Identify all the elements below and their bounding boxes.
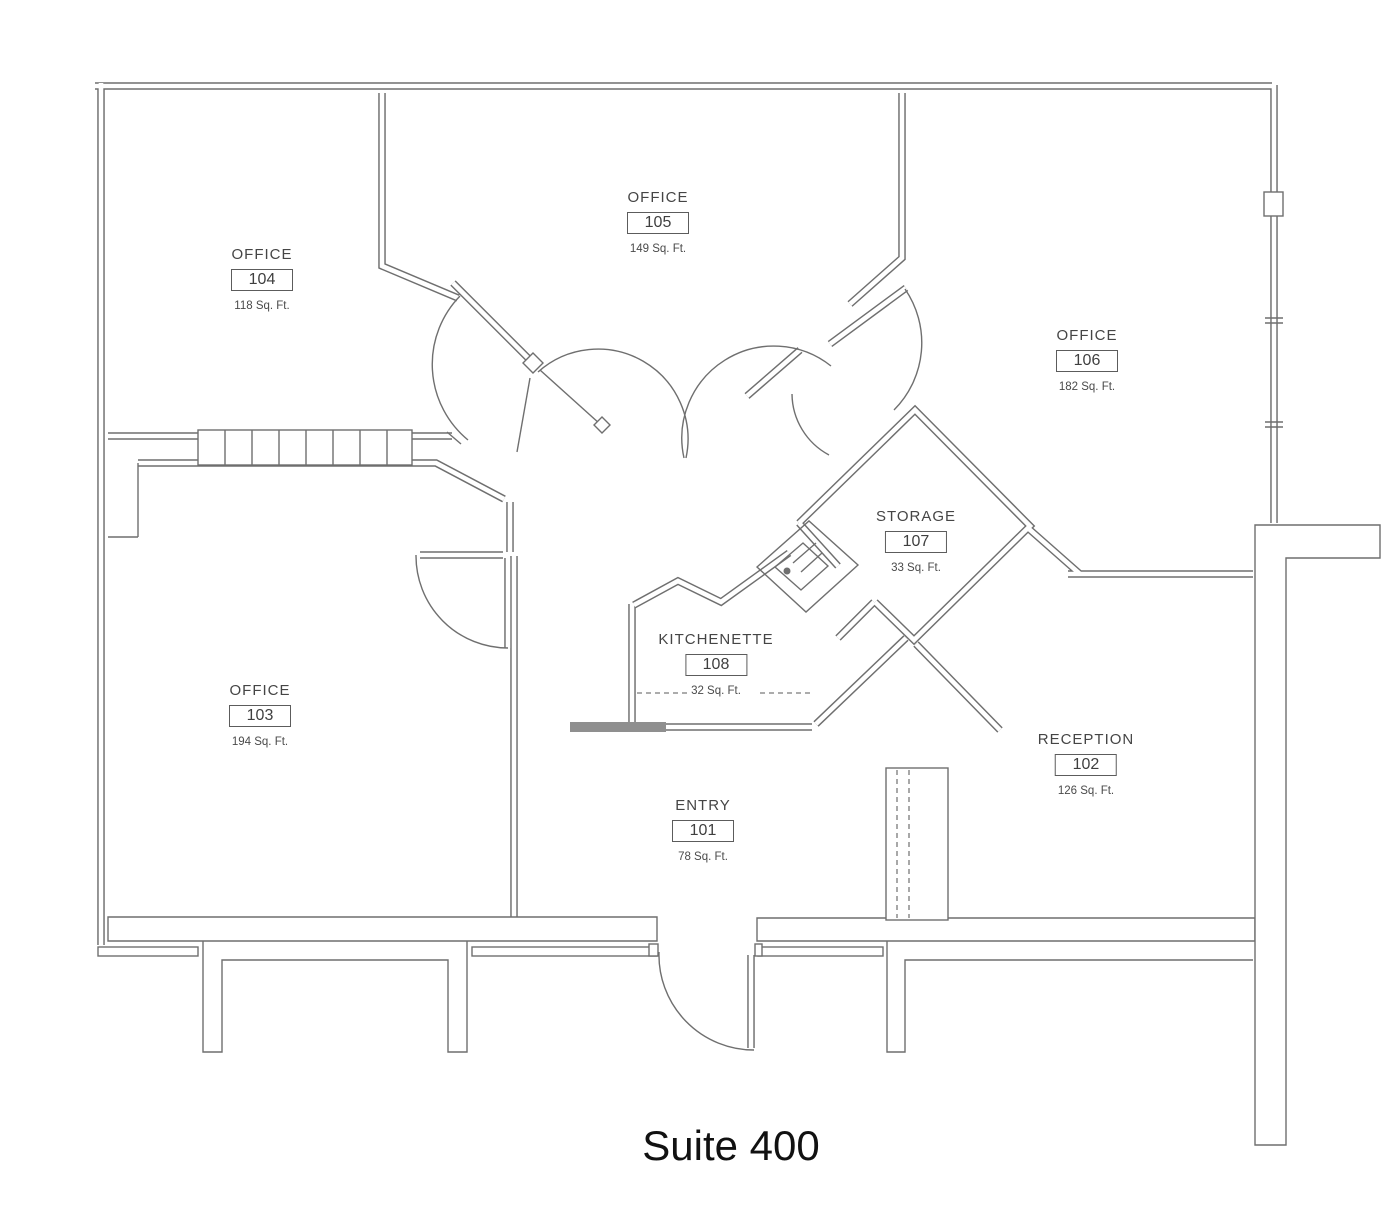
wall-notch [108,463,138,537]
room-name: STORAGE [876,508,956,525]
room-area: 182 Sq. Ft. [1056,381,1118,393]
room-number: 106 [1074,352,1101,369]
room-area: 194 Sq. Ft. [229,736,291,748]
room-number-box: 102 [1055,754,1117,776]
room-label-108: KITCHENETTE 108 32 Sq. Ft. [658,631,773,697]
room-label-105: OFFICE 105 149 Sq. Ft. [627,189,689,255]
room-number: 108 [703,656,730,673]
room-name: OFFICE [627,189,689,206]
room-area: 126 Sq. Ft. [1038,785,1135,797]
room-number: 102 [1073,756,1100,773]
right-wall-band [1255,525,1380,1145]
room-area: 149 Sq. Ft. [627,243,689,255]
room-area: 118 Sq. Ft. [231,300,293,312]
room-number: 101 [690,822,717,839]
room-number-box: 105 [627,212,689,234]
room-number: 105 [645,214,672,231]
glazed-partition [198,430,412,465]
room-area: 33 Sq. Ft. [876,562,956,574]
room-area: 78 Sq. Ft. [672,851,734,863]
room-number: 104 [249,271,276,288]
room-name: OFFICE [229,682,291,699]
room-name: ENTRY [672,797,734,814]
room-label-104: OFFICE 104 118 Sq. Ft. [231,246,293,312]
reception-partition [886,768,948,920]
room-label-106: OFFICE 106 182 Sq. Ft. [1056,327,1118,393]
room-number-box: 107 [885,531,947,553]
room-name: OFFICE [1056,327,1118,344]
room-number-box: 108 [685,654,747,676]
room-label-103: OFFICE 103 194 Sq. Ft. [229,682,291,748]
room-label-107: STORAGE 107 33 Sq. Ft. [876,508,956,574]
floor-plan-drawing [0,0,1400,1222]
room-area: 32 Sq. Ft. [658,685,773,697]
room-name: OFFICE [231,246,293,263]
room-name: RECEPTION [1038,731,1135,748]
room-number: 103 [247,707,274,724]
exterior-base-walls [98,525,1380,1145]
room-label-101: ENTRY 101 78 Sq. Ft. [672,797,734,863]
floor-plan: OFFICE 104 118 Sq. Ft. OFFICE 105 149 Sq… [0,0,1400,1222]
plan-title: Suite 400 [642,1122,819,1170]
room-name: KITCHENETTE [658,631,773,648]
room-number-box: 101 [672,820,734,842]
room-label-102: RECEPTION 102 126 Sq. Ft. [1038,731,1135,797]
room-number: 107 [903,533,930,550]
room-number-box: 103 [229,705,291,727]
room-number-box: 106 [1056,350,1118,372]
room-number-box: 104 [231,269,293,291]
